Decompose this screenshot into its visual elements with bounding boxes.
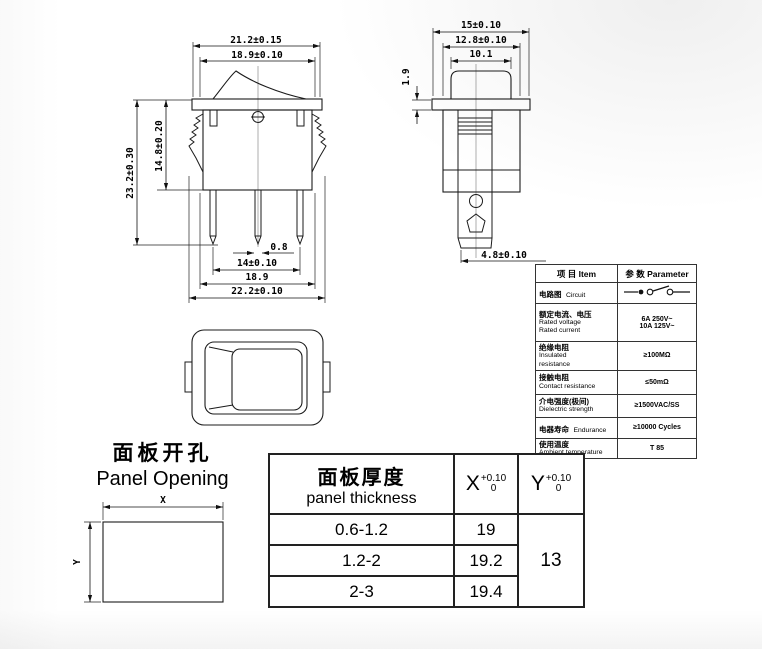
side-view-drawing <box>432 64 530 258</box>
dim-label-side-rocker-width: 10.1 <box>470 49 493 60</box>
spec-table: 项 目 Item 参 数 Parameter 电路图 Circuit 额定电流、… <box>535 264 697 459</box>
panel-opening-title-cn: 面板开孔 <box>90 437 235 467</box>
dim-label-terminal-pitch: 14±0.10 <box>237 258 277 269</box>
front-view-drawing <box>189 66 326 247</box>
dim-label-panel-x: X <box>160 495 166 506</box>
spec-circuit-cn: 电路图 <box>539 290 562 299</box>
dim-label-front-flange-width: 21.2±0.15 <box>230 35 282 46</box>
spec-contact-value: ≤50mΩ <box>618 370 697 394</box>
spec-rated-v1: 6A 250V~ <box>621 316 693 323</box>
dim-label-side-flange-width: 15±0.10 <box>461 20 501 31</box>
spec-row-insulated: 绝缘电阻 Insulated resistance ≥100MΩ <box>536 342 697 371</box>
panel-opening-title: 面板开孔 Panel Opening <box>90 437 235 491</box>
spec-rated-en2: Rated current <box>539 327 614 335</box>
spec-endurance-en: Endurance <box>573 427 606 434</box>
spec-insulated-en1: Insulated <box>539 352 614 360</box>
front-view-dimensions: 21.2±0.15 18.9±0.10 23.2±0.30 14.8±0.20 … <box>125 35 325 303</box>
spec-dielectric-cn: 介电强度(极间) <box>539 397 614 406</box>
spec-row-contact: 接触电阻 Contact resistance ≤50mΩ <box>536 370 697 394</box>
spec-header-row: 项 目 Item 参 数 Parameter <box>536 265 697 283</box>
spec-contact-en: Contact resistance <box>539 383 614 391</box>
circuit-symbol-icon <box>623 285 691 297</box>
col-header-y: Y +0.10 0 <box>518 454 584 514</box>
spec-insulated-cn: 绝缘电阻 <box>539 343 614 352</box>
spec-rated-en1: Rated voltage <box>539 319 614 327</box>
spec-row-endurance: 电器寿命 Endurance ≥10000 Cycles <box>536 417 697 438</box>
dim-label-front-body-height: 14.8±0.20 <box>154 120 165 172</box>
thickness-header-cn: 面板厚度 <box>270 461 453 490</box>
dim-label-front-total-height: 23.2±0.30 <box>125 147 136 199</box>
side-view-dimensions: 15±0.10 12.8±0.10 10.1 1.9 4.8±0.10 <box>401 20 546 263</box>
x-value: 19 <box>454 514 518 545</box>
dim-label-terminal-length: 4.8±0.10 <box>481 250 527 261</box>
spec-dielectric-en: Dielectric strength <box>539 406 614 414</box>
spec-ambient-value: T 85 <box>618 438 697 459</box>
y-tol-zero: 0 <box>546 484 571 494</box>
spec-ambient-cn: 使用温度 <box>539 440 614 449</box>
spec-circuit-en: Circuit <box>566 292 585 299</box>
spec-row-rated: 额定电流、电压 Rated voltage Rated current 6A 2… <box>536 304 697 342</box>
x-tol-zero: 0 <box>481 484 506 494</box>
spec-endurance-value: ≥10000 Cycles <box>618 417 697 438</box>
col-header-x: X +0.10 0 <box>454 454 518 514</box>
spec-row-dielectric: 介电强度(极间) Dielectric strength ≥1500VAC/SS <box>536 394 697 417</box>
x-header-base: X <box>466 472 480 496</box>
y-header-base: Y <box>531 472 545 496</box>
spec-insulated-en2: resistance <box>539 361 614 369</box>
thickness-header-en: panel thickness <box>270 490 453 508</box>
dim-label-front-inner-width-top: 18.9±0.10 <box>231 50 283 61</box>
x-value: 19.2 <box>454 545 518 576</box>
spec-insulated-value: ≥100MΩ <box>618 342 697 371</box>
thickness-header-row: 面板厚度 panel thickness X +0.10 0 Y +0.10 <box>269 454 584 514</box>
panel-opening-drawing: X Y <box>72 495 223 602</box>
dim-label-panel-y: Y <box>72 559 83 565</box>
thickness-range: 2-3 <box>269 576 454 607</box>
spec-header-item: 项 目 Item <box>536 265 618 283</box>
dim-label-flange-thickness: 1.9 <box>401 68 412 85</box>
thickness-range: 0.6-1.2 <box>269 514 454 545</box>
top-view-drawing <box>185 330 330 425</box>
dim-label-side-body-width: 12.8±0.10 <box>455 35 507 46</box>
dim-label-terminal-thickness: 0.8 <box>270 242 287 253</box>
spec-dielectric-value: ≥1500VAC/SS <box>618 394 697 417</box>
x-value: 19.4 <box>454 576 518 607</box>
thickness-row-1: 0.6-1.2 19 13 <box>269 514 584 545</box>
spec-rated-v2: 10A 125V~ <box>621 323 693 330</box>
thickness-range: 1.2-2 <box>269 545 454 576</box>
y-value: 13 <box>518 514 584 607</box>
spec-rated-cn: 额定电流、电压 <box>539 310 614 319</box>
panel-opening-title-en: Panel Opening <box>90 468 235 491</box>
col-header-thickness: 面板厚度 panel thickness <box>269 454 454 514</box>
spec-header-parameter: 参 数 Parameter <box>618 265 697 283</box>
spec-endurance-cn: 电器寿命 <box>539 425 569 434</box>
rocker-switch-datasheet: 21.2±0.15 18.9±0.10 23.2±0.30 14.8±0.20 … <box>0 0 762 649</box>
dim-label-front-inner-width-bottom: 18.9 <box>246 272 269 283</box>
spec-contact-cn: 接触电阻 <box>539 373 614 382</box>
dim-label-front-total-width: 22.2±0.10 <box>231 286 283 297</box>
panel-thickness-table: 面板厚度 panel thickness X +0.10 0 Y +0.10 <box>268 453 585 608</box>
spec-row-circuit: 电路图 Circuit <box>536 283 697 304</box>
